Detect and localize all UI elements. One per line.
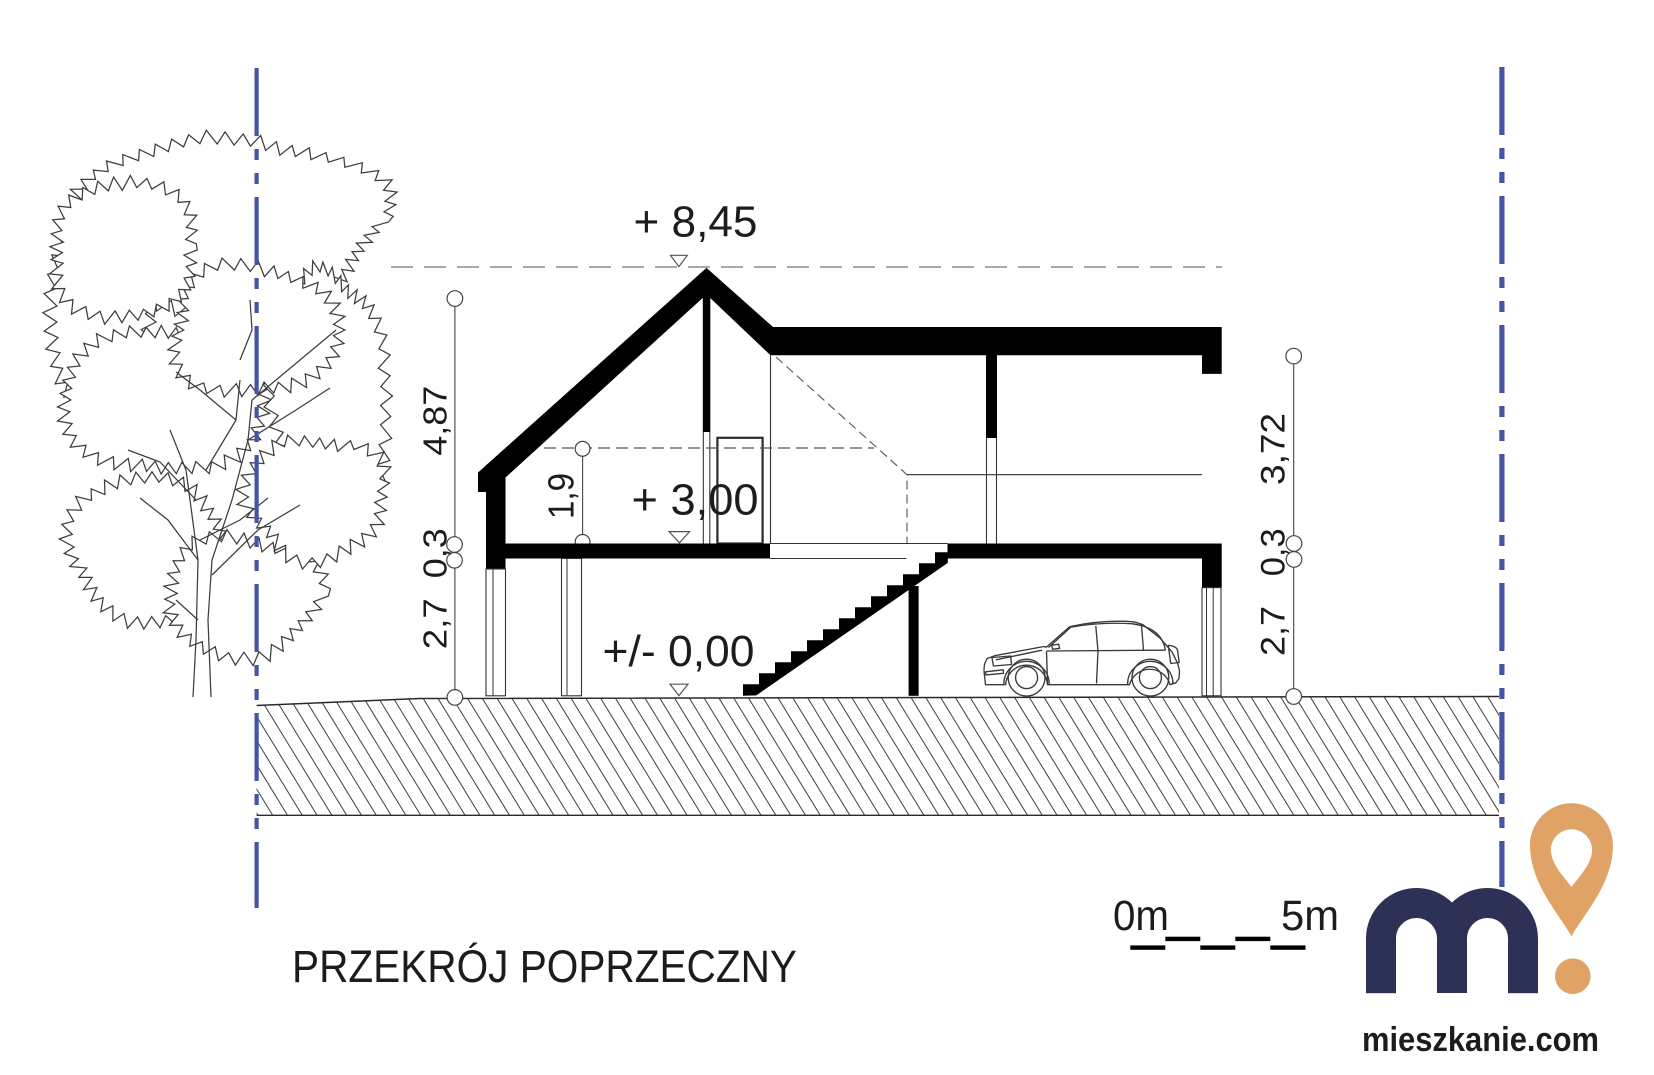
svg-text:0,3: 0,3 [417, 528, 454, 578]
svg-text:0m: 0m [1113, 892, 1169, 940]
svg-text:mieszkanie.com: mieszkanie.com [1362, 1021, 1599, 1059]
svg-text:PRZEKRÓJ POPRZECZNY: PRZEKRÓJ POPRZECZNY [292, 941, 797, 992]
svg-text:2,7: 2,7 [1255, 606, 1293, 656]
svg-text:2,7: 2,7 [417, 598, 454, 649]
svg-text:5m: 5m [1281, 892, 1339, 940]
svg-text:4,87: 4,87 [417, 386, 454, 456]
svg-text:0,3: 0,3 [1255, 528, 1293, 576]
svg-text:+/- 0,00: +/- 0,00 [603, 627, 755, 676]
svg-text:1,9: 1,9 [541, 473, 582, 519]
svg-text:+ 3,00: + 3,00 [632, 476, 759, 525]
svg-text:+ 8,45: + 8,45 [634, 198, 758, 247]
svg-text:3,72: 3,72 [1255, 413, 1293, 485]
